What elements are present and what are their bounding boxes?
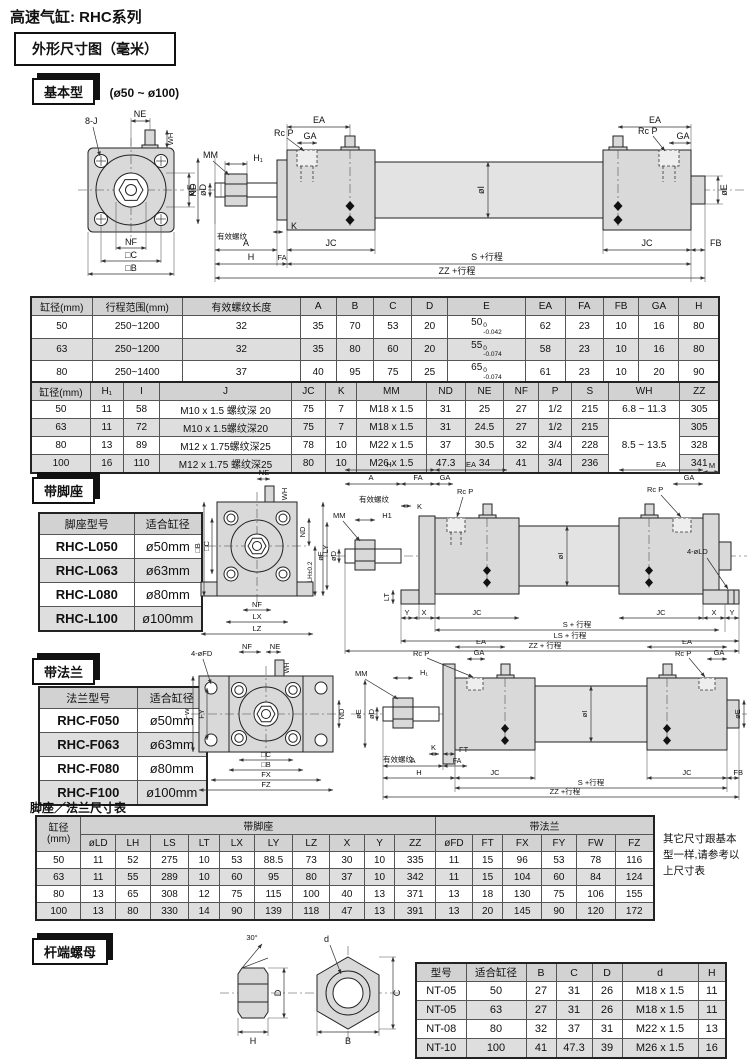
col-header: I <box>123 382 160 401</box>
cell: 371 <box>395 886 436 903</box>
col-header: FW <box>576 835 615 852</box>
cell: 80 <box>293 869 330 886</box>
cell: 11 <box>436 852 473 869</box>
rod-end-nut-tab: 杆端螺母 <box>32 938 108 965</box>
col-header: 行程范围(mm) <box>92 297 182 316</box>
cell: 172 <box>615 903 654 921</box>
cell: 80 <box>31 437 90 455</box>
cell: M18 x 1.5 <box>622 982 698 1001</box>
table-row: RHC-F063ø63mm <box>39 733 207 757</box>
cell: 11 <box>90 401 123 419</box>
cell: 75 <box>219 886 254 903</box>
col-header: Y <box>364 835 395 852</box>
col-header: øFD <box>436 835 473 852</box>
col-header: FZ <box>615 835 654 852</box>
cell: 73 <box>293 852 330 869</box>
dim-oe-right: øE <box>719 184 729 196</box>
cell: RHC-L080 <box>39 583 134 607</box>
cell: 80 <box>116 903 151 921</box>
cell: 250~1200 <box>92 338 182 361</box>
col-header: B <box>336 297 374 316</box>
col-header: 适合缸径 <box>134 513 202 535</box>
col-header: ZZ <box>395 835 436 852</box>
cell: ø100mm <box>134 607 202 632</box>
foot-mount-drawing: NE WH ND □B □C LY LH±0.2 NF LX LZ øE øD … <box>195 462 750 654</box>
cell: 10 <box>603 338 639 361</box>
foot-mount-tab: 带脚座 <box>32 477 95 504</box>
cell: 63 <box>31 419 90 437</box>
cell: 50 <box>31 401 90 419</box>
dim-lz: LZ <box>253 624 262 633</box>
dim-ga-right: GA <box>714 648 725 657</box>
cell: 145 <box>503 903 542 921</box>
cell: 31 <box>426 419 465 437</box>
dim-d-thread: d <box>324 934 329 944</box>
cell: 11 <box>90 419 123 437</box>
cell: 250~1400 <box>92 361 182 384</box>
cell: 10 <box>364 869 395 886</box>
cell: 650-0.074 <box>448 361 526 384</box>
dim-zz: ZZ +行程 <box>550 786 581 796</box>
table-row: 1001380330149013911847133911320145901201… <box>36 903 654 921</box>
section-flange: 带法兰 <box>32 658 95 685</box>
dim-oe: øE <box>316 551 325 561</box>
dim-ne: NE <box>270 642 280 651</box>
dim-h1: H1 <box>382 511 392 520</box>
dim-sqb: □B <box>261 760 271 769</box>
col-header: 法兰型号 <box>39 687 137 709</box>
cell: RHC-L050 <box>39 535 134 559</box>
cell: 37 <box>182 361 300 384</box>
col-header: 有效螺纹长度 <box>182 297 300 316</box>
dim-rcp-left: Rc P <box>274 128 294 138</box>
cell: 70 <box>336 316 374 339</box>
cell: 27 <box>504 419 539 437</box>
dim-sqb: □B <box>195 543 202 553</box>
col-header: P <box>539 382 572 401</box>
dim-sqc: □C <box>202 540 211 551</box>
cell: 7 <box>326 401 357 419</box>
cell: 100 <box>31 455 90 474</box>
col-header: A <box>300 297 336 316</box>
col-header: ZZ <box>680 382 719 401</box>
dim-nd: ND <box>298 526 307 537</box>
cell: 80 <box>679 316 719 339</box>
cell: 95 <box>336 361 374 384</box>
cell: 31 <box>556 982 592 1001</box>
cell: 80 <box>31 361 92 384</box>
cell: 289 <box>150 869 189 886</box>
dim-mm: MM <box>203 150 218 160</box>
cell: 13 <box>364 903 395 921</box>
dim-8j: 8-J <box>85 116 98 126</box>
cell: 58 <box>525 338 565 361</box>
cell: 65 <box>116 886 151 903</box>
dim-lx: LX <box>252 612 261 621</box>
cell: 72 <box>123 419 160 437</box>
col-header: B <box>526 963 556 982</box>
cell: 11 <box>436 869 473 886</box>
dim-sqc: □C <box>125 250 137 260</box>
dim-od: øD <box>198 184 208 196</box>
section-foot: 带脚座 <box>32 477 95 504</box>
dim-oe: øE <box>186 184 196 196</box>
cell: 24.5 <box>465 419 504 437</box>
cell: 88.5 <box>254 852 293 869</box>
cell: 275 <box>150 852 189 869</box>
dim-b: B <box>345 1036 351 1046</box>
cell: 15 <box>472 869 503 886</box>
dim-rcp-right: Rc P <box>647 485 663 494</box>
dim-h: H <box>416 768 421 777</box>
cell: 41 <box>526 1039 556 1059</box>
cell: 18 <box>472 886 503 903</box>
cell: 20 <box>412 338 448 361</box>
cell: 20 <box>639 361 679 384</box>
cell: 305 <box>680 419 719 437</box>
dim-ea-left: EA <box>476 640 486 646</box>
cell: RHC-F080 <box>39 757 137 781</box>
table-row: 63250~12003235806020550-0.0745823101680 <box>31 338 719 361</box>
cell: 13 <box>90 437 123 455</box>
cell: 55 <box>116 869 151 886</box>
cell: 250~1200 <box>92 316 182 339</box>
cell: 78 <box>576 852 615 869</box>
basic-type-drawing: NE 8-J WH ND NF □C □B øE øD MM H₁ Rc P G… <box>55 98 750 290</box>
col-header: LH <box>116 835 151 852</box>
cell: ø80mm <box>134 583 202 607</box>
cell: 13 <box>81 903 116 921</box>
footflange-note: 其它尺寸跟基本 型一样,请参考以 上尺寸表 <box>663 832 748 879</box>
cell: 90 <box>542 903 577 921</box>
dim-x-left: X <box>421 608 426 617</box>
col-header: E <box>448 297 526 316</box>
cell: 75 <box>542 886 577 903</box>
cell: NT-05 <box>416 1001 466 1020</box>
dim-m: M <box>709 462 715 470</box>
dim-nf: NF <box>242 642 252 651</box>
col-header: K <box>326 382 357 401</box>
dim-wh: WH <box>280 488 289 501</box>
cell: 10 <box>603 361 639 384</box>
cell: 75 <box>374 361 412 384</box>
page-title: 高速气缸: RHC系列 <box>10 6 142 27</box>
cell: 60 <box>542 869 577 886</box>
col-header: H <box>698 963 726 982</box>
col-header: C <box>556 963 592 982</box>
cell: 80 <box>36 886 81 903</box>
cell: 32 <box>182 338 300 361</box>
cell: 90 <box>219 903 254 921</box>
col-header: C <box>374 297 412 316</box>
cell: 16 <box>639 316 679 339</box>
col-header: 适合缸径 <box>466 963 526 982</box>
cell: 1/2 <box>539 419 572 437</box>
cell: 50 <box>31 316 92 339</box>
cell: 80 <box>466 1020 526 1039</box>
cell: 50 <box>36 852 81 869</box>
dim-x-right: X <box>711 608 716 617</box>
cell: 31 <box>426 401 465 419</box>
dim-ea-right: EA <box>649 115 661 125</box>
cell: 47 <box>330 903 365 921</box>
cell: 32 <box>504 437 539 455</box>
cell: 100 <box>36 903 81 921</box>
cell: 47.3 <box>556 1039 592 1059</box>
col-header: H <box>679 297 719 316</box>
cell: 27 <box>526 982 556 1001</box>
cell: 139 <box>254 903 293 921</box>
cell: 1/2 <box>539 401 572 419</box>
dim-y-right: Y <box>729 608 734 617</box>
dim-ea-right: EA <box>656 462 666 469</box>
cell: 39 <box>592 1039 622 1059</box>
cell: 342 <box>395 869 436 886</box>
cell: M12 x 1.75螺纹深25 <box>160 437 291 455</box>
cell: NT-10 <box>416 1039 466 1059</box>
cell: 26 <box>592 1001 622 1020</box>
cell: 80 <box>336 338 374 361</box>
cell: 61 <box>525 361 565 384</box>
table-row: 501158M10 x 1.5 螺纹深 20757M18 x 1.5312527… <box>31 401 719 419</box>
dim-fb: FB <box>710 238 722 248</box>
foot-model-table: 脚座型号适合缸径RHC-L050ø50mmRHC-L063ø63mmRHC-L0… <box>38 512 203 632</box>
col-header: FB <box>603 297 639 316</box>
table-row: RHC-F080ø80mm <box>39 757 207 781</box>
cell: NT-05 <box>416 982 466 1001</box>
cell: 60 <box>374 338 412 361</box>
table-row: NT-101004147.339M26 x 1.516 <box>416 1039 726 1059</box>
cell: M18 x 1.5 <box>357 401 427 419</box>
cell: 13 <box>698 1020 726 1039</box>
cell: 63 <box>36 869 81 886</box>
dim-rcp-right: Rc P <box>638 126 658 136</box>
cell: ø63mm <box>134 559 202 583</box>
dim-ea-left: EA <box>313 115 325 125</box>
cell: 7 <box>326 419 357 437</box>
cell: RHC-F063 <box>39 733 137 757</box>
cell: 391 <box>395 903 436 921</box>
cell: 50 <box>466 982 526 1001</box>
dim-oi: øI <box>476 186 486 194</box>
cell: 10 <box>189 852 220 869</box>
dim-rcp-left: Rc P <box>413 649 429 658</box>
cell: 16 <box>698 1039 726 1059</box>
dim-h1: H₁ <box>420 668 428 677</box>
col-header: 型号 <box>416 963 466 982</box>
cell: M26 x 1.5 <box>622 1039 698 1059</box>
group-header: 带脚座 <box>81 816 436 835</box>
col-header: FY <box>542 835 577 852</box>
dim-rcp-right: Rc P <box>675 649 691 658</box>
dim-h-thick: H <box>250 1036 257 1046</box>
cell: 3/4 <box>539 437 572 455</box>
cell: 330 <box>150 903 189 921</box>
dim-s: S + 行程 <box>563 619 592 629</box>
table-row: NT-0550273126M18 x 1.511 <box>416 982 726 1001</box>
cell: 10 <box>603 316 639 339</box>
cell: 106 <box>576 886 615 903</box>
cell: 75 <box>291 419 326 437</box>
dim-thread: 有效螺纹 <box>359 494 389 504</box>
rod-end-nut-drawing: 30° D H d C B <box>148 928 410 1050</box>
cell: 25 <box>465 401 504 419</box>
col-header: LZ <box>293 835 330 852</box>
cell: M10 x 1.5 螺纹深 20 <box>160 401 291 419</box>
dim-k: K <box>431 743 436 752</box>
cell: 115 <box>254 886 293 903</box>
cell: 550-0.074 <box>448 338 526 361</box>
dim-jc-left: JC <box>490 768 500 777</box>
dim-od: øD <box>367 708 376 719</box>
cell: 15 <box>472 852 503 869</box>
cell: M22 x 1.5 <box>622 1020 698 1039</box>
table-row: NT-0880323731M22 x 1.513 <box>416 1020 726 1039</box>
table-row: 501152275105388.57330103351115965378116 <box>36 852 654 869</box>
dim-ga-right: GA <box>676 131 689 141</box>
cell: 32 <box>526 1020 556 1039</box>
cell: 308 <box>150 886 189 903</box>
dim-k: K <box>417 502 422 511</box>
col-header: d <box>622 963 698 982</box>
table-row: RHC-L050ø50mm <box>39 535 202 559</box>
cell: 110 <box>123 455 160 474</box>
cell: 78 <box>291 437 326 455</box>
cell: NT-08 <box>416 1020 466 1039</box>
dim-4ofd: 4-øFD <box>191 649 213 658</box>
cell: 32 <box>182 316 300 339</box>
table-row: 631172M10 x 1.5螺纹深20757M18 x 1.53124.527… <box>31 419 719 437</box>
cell: RHC-L100 <box>39 607 134 632</box>
dim-zz: ZZ +行程 <box>439 265 476 276</box>
cell: 116 <box>615 852 654 869</box>
cell: 215 <box>571 419 608 437</box>
flange-tab: 带法兰 <box>32 658 95 685</box>
cell: 13 <box>436 903 473 921</box>
cell: 31 <box>556 1001 592 1020</box>
cell: 16 <box>639 338 679 361</box>
col-header: S <box>571 382 608 401</box>
dim-fa: FA <box>277 253 286 262</box>
cell: 23 <box>565 361 603 384</box>
dim-fw: FW <box>185 707 191 720</box>
col-header: JC <box>291 382 326 401</box>
table-row: 50250~12003235705320500-0.0426223101680 <box>31 316 719 339</box>
cell: 53 <box>542 852 577 869</box>
col-header: 缸径(mm) <box>31 297 92 316</box>
table-row: 80250~14003740957525650-0.0746123102090 <box>31 361 719 384</box>
cell: 13 <box>364 886 395 903</box>
cell: 58 <box>123 401 160 419</box>
dim-y-left: Y <box>404 608 409 617</box>
cell: 10 <box>364 852 395 869</box>
cell: 26 <box>592 982 622 1001</box>
section-nut: 杆端螺母 <box>32 938 108 965</box>
dim-4old: 4-øLD <box>687 547 708 556</box>
cell: 20 <box>412 316 448 339</box>
dim-jc-right: JC <box>682 768 692 777</box>
dimension-figure-box-label: 外形尺寸图（毫米） <box>14 32 176 66</box>
cell: 35 <box>300 338 336 361</box>
cell: 96 <box>503 852 542 869</box>
dim-ne: NE <box>134 109 147 119</box>
dim-jc-left: JC <box>326 238 338 248</box>
cell: 27 <box>526 1001 556 1020</box>
col-header: LT <box>189 835 220 852</box>
cell: 35 <box>300 316 336 339</box>
cell: 62 <box>525 316 565 339</box>
cell: 20 <box>472 903 503 921</box>
footflange-dimension-table: 缸径 (mm)带脚座带法兰øLDLHLSLTLXLYLZXYZZøFDFTFXF… <box>35 815 655 921</box>
cell: RHC-L063 <box>39 559 134 583</box>
col-header: FT <box>472 835 503 852</box>
dim-wh: WH <box>284 662 291 673</box>
col-header: 脚座型号 <box>39 513 134 535</box>
cell: 328 <box>680 437 719 455</box>
dimension-figure-box: 外形尺寸图（毫米） <box>14 32 176 66</box>
cell: 37 <box>556 1020 592 1039</box>
dim-ga-left: GA <box>474 648 485 657</box>
col-header: J <box>160 382 291 401</box>
cell: 23 <box>565 338 603 361</box>
dim-lt: LT <box>382 592 391 601</box>
table-row: 8013653081275115100401337113181307510615… <box>36 886 654 903</box>
dim-ft: FT <box>459 745 469 754</box>
col-header: D <box>412 297 448 316</box>
col-header: ND <box>426 382 465 401</box>
dim-jc-left: JC <box>472 608 482 617</box>
cell: 63 <box>31 338 92 361</box>
dim-s: S +行程 <box>578 777 605 787</box>
footflange-table-title: 脚座／法兰尺寸表 <box>30 799 126 816</box>
cell: 31 <box>592 1020 622 1039</box>
table-row: NT-0563273126M18 x 1.511 <box>416 1001 726 1020</box>
col-header: D <box>592 963 622 982</box>
cell: 500-0.042 <box>448 316 526 339</box>
table-row: 63115528910609580371034211151046084124 <box>36 869 654 886</box>
cell: M18 x 1.5 <box>622 1001 698 1020</box>
col-header: LS <box>150 835 189 852</box>
table-row: RHC-L080ø80mm <box>39 583 202 607</box>
flange-model-table: 法兰型号适合缸径RHC-F050ø50mmRHC-F063ø63mmRHC-F0… <box>38 686 208 806</box>
dim-mm: MM <box>355 669 368 678</box>
dim-ga-right: GA <box>684 473 695 482</box>
col-header: NE <box>465 382 504 401</box>
col-header: NF <box>504 382 539 401</box>
cell: 27 <box>504 401 539 419</box>
cell: 13 <box>81 886 116 903</box>
dim-oe: øE <box>354 709 363 719</box>
dim-ea-right: EA <box>682 640 692 646</box>
dim-ga-left: GA <box>303 131 316 141</box>
col-header: MM <box>357 382 427 401</box>
cell: 90 <box>679 361 719 384</box>
dim-k: K <box>291 221 297 231</box>
col-header: 缸径 (mm) <box>36 816 81 852</box>
dim-oe-right: øE <box>733 709 742 719</box>
cell: 10 <box>326 437 357 455</box>
cell: 23 <box>565 316 603 339</box>
dim-oi: øI <box>556 553 565 560</box>
cell: 60 <box>219 869 254 886</box>
cell: 130 <box>503 886 542 903</box>
cell: 13 <box>436 886 473 903</box>
col-header: LX <box>219 835 254 852</box>
cell: 30.5 <box>465 437 504 455</box>
cell: 10 <box>189 869 220 886</box>
cell: 37 <box>330 869 365 886</box>
dim-fa: FA <box>413 473 422 482</box>
